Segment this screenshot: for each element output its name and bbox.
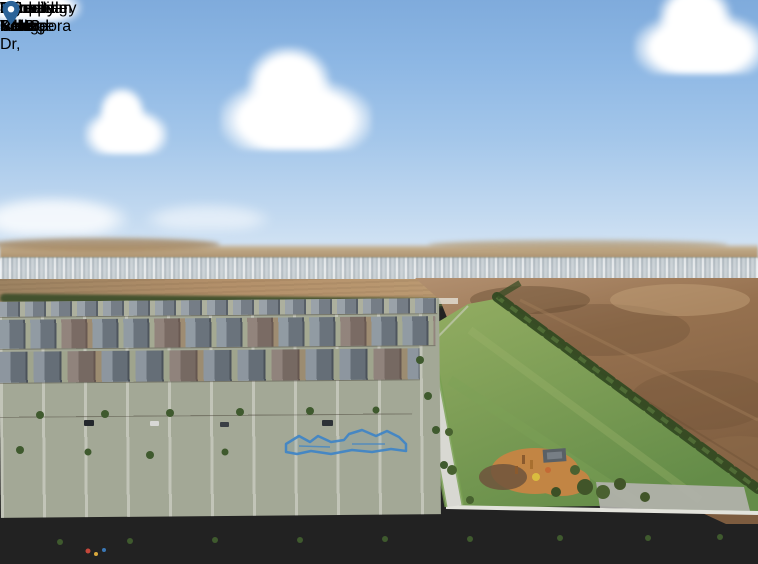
aerial-location-image: 8 MINS 2.5 KMS Brinbeal Secondary Colleg… xyxy=(0,0,758,564)
property-boundary-outline xyxy=(286,430,406,454)
playground-equipment-small xyxy=(86,548,107,556)
parked-cars xyxy=(84,420,333,427)
detail-overlay xyxy=(0,0,758,564)
